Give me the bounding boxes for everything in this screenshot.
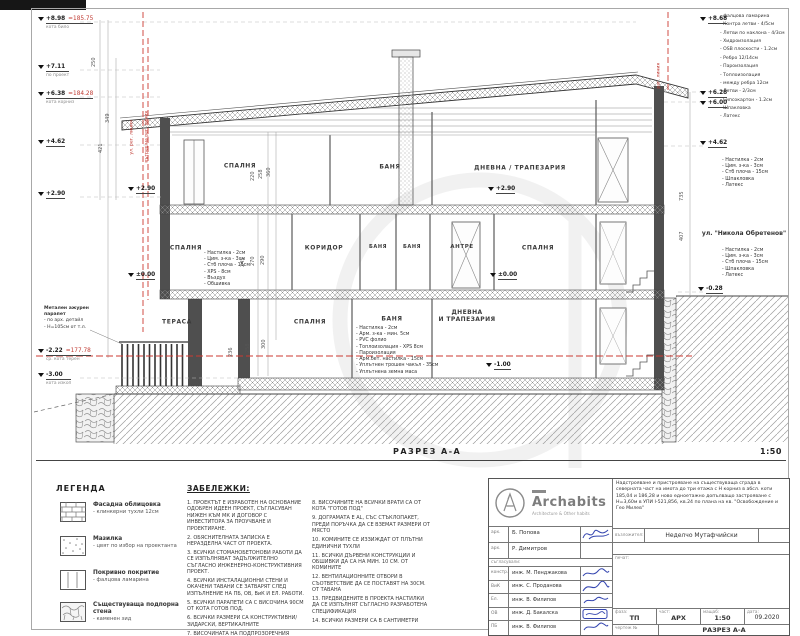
phase-value: ТП bbox=[613, 614, 656, 622]
legend-item: Съществуваща подпорна стена - каменен зи… bbox=[60, 602, 193, 623]
person-name: инж. Д. Бакалска bbox=[509, 608, 580, 617]
notes-column-1: 1. ПРОЕКТЪТ Е ИЗРАБОТЕН НА ОСНОВАНИЕ ОДО… bbox=[187, 500, 305, 636]
terrace-railing bbox=[90, 330, 188, 386]
person-name: инж. В. Филипов bbox=[509, 594, 580, 603]
person-name: инж. М. Пенджакова bbox=[509, 567, 580, 576]
room-label: СПАЛНЯ bbox=[522, 245, 554, 252]
role-label: ПБ bbox=[489, 621, 508, 629]
dim-label: 290 bbox=[261, 255, 266, 265]
signature-cell bbox=[581, 621, 613, 635]
elevation-marker: +2.90 bbox=[128, 186, 155, 194]
person-name: Р. Димитров bbox=[509, 543, 580, 552]
scale-value: 1:50 bbox=[701, 614, 744, 622]
signature-icon bbox=[581, 527, 611, 541]
room-label: КОРИДОР bbox=[305, 245, 343, 252]
person-name: Б. Попова bbox=[509, 527, 580, 536]
dim-label: 258 bbox=[259, 169, 264, 179]
role-label: арх. bbox=[489, 527, 508, 535]
elevation-marker: +6.28 bbox=[700, 90, 727, 98]
level-marker-icon bbox=[700, 91, 706, 95]
room-label: БАНЯ bbox=[381, 316, 402, 323]
project-description: Надстрояване и пристрояване на съществув… bbox=[613, 479, 789, 515]
part-value: АРХ bbox=[657, 614, 700, 622]
dim-label: 360 bbox=[267, 167, 272, 177]
section-title: РАЗРЕЗ А-А bbox=[393, 447, 461, 456]
dim-label: 300 bbox=[262, 339, 267, 349]
dim-label: 349 bbox=[106, 113, 111, 123]
client-name: Неделчо Мутафчийски bbox=[645, 529, 758, 539]
stairs bbox=[626, 271, 654, 376]
drawing-sheet: СПАЛНЯ БАНЯ ДНЕВНА / ТРАПЕЗАРИЯ СПАЛНЯ К… bbox=[0, 0, 800, 636]
dim-label: 270 bbox=[251, 256, 256, 266]
level-marker-icon bbox=[486, 363, 492, 367]
brand-tagline: Architecture & Other habits bbox=[532, 511, 606, 516]
dim-label: 250 bbox=[92, 57, 97, 67]
spec-list-ground: - Настилка - 2см- Арм. з-ка - мин. 5см- … bbox=[356, 326, 438, 376]
signature-icon bbox=[581, 567, 611, 579]
level-marker-icon bbox=[38, 17, 44, 21]
signature-cell bbox=[581, 543, 613, 559]
elevation-marker: +6.38=184.28 кота корниз bbox=[38, 91, 93, 105]
elevation-marker: +8.98=185.75 кота било bbox=[38, 16, 93, 30]
stone-wall-icon bbox=[60, 602, 86, 622]
legend-title: ЛЕГЕНДА bbox=[56, 484, 106, 493]
elevation-marker: +6.00 bbox=[700, 100, 727, 108]
elevation-marker: ±0.00 bbox=[490, 272, 517, 280]
level-marker-icon bbox=[700, 101, 706, 105]
elevation-marker: -0.28 bbox=[698, 286, 723, 294]
room-label: АНТРЕ bbox=[450, 244, 473, 250]
role-label: ВиК bbox=[489, 581, 508, 589]
dim-label: 220 bbox=[251, 171, 256, 181]
room-label: ТЕРАСА bbox=[162, 319, 192, 326]
level-marker-icon bbox=[488, 187, 494, 191]
approved-label: съгласували: bbox=[489, 559, 612, 564]
street-label: ул. "Никола Обретенов" bbox=[698, 230, 790, 237]
parapet-note: Метален ажуренпарапет- по арх. детайл- Н… bbox=[44, 306, 89, 331]
chimney bbox=[392, 50, 420, 205]
level-marker-icon bbox=[38, 373, 44, 377]
signature-cell bbox=[581, 581, 613, 595]
level-marker-icon bbox=[38, 349, 44, 353]
role-label: констр. bbox=[489, 567, 508, 575]
spec-list-roof: - фалцова ламарина- Контра летви - 4/5см… bbox=[720, 13, 785, 122]
signature-stamp-icon bbox=[581, 608, 611, 620]
room-label: БАНЯ bbox=[403, 244, 421, 250]
section-scale: 1:50 bbox=[760, 447, 782, 456]
role-label: Ел. bbox=[489, 594, 508, 602]
plaster-hatch-icon bbox=[60, 536, 86, 556]
dim-label: 407 bbox=[680, 231, 685, 241]
elevation-marker: -2.22=177.78 ср. кота терен bbox=[38, 348, 91, 362]
room-label: СПАЛНЯ bbox=[224, 163, 256, 170]
client-label: възложител: bbox=[613, 529, 644, 537]
dim-label: 735 bbox=[680, 191, 685, 201]
elevation-marker: +2.90 bbox=[488, 186, 515, 194]
elevation-marker: +7.11 по проект bbox=[38, 64, 69, 78]
level-marker-icon bbox=[700, 17, 706, 21]
signature-icon bbox=[581, 581, 611, 593]
notes-column-2: 8. ВИСОЧИНИТЕ НА ВСИЧКИ ВРАТИ СА ОТ КОТА… bbox=[312, 500, 430, 627]
brick-hatch-icon bbox=[60, 502, 86, 522]
elevation-marker: -1.00 bbox=[486, 362, 511, 370]
spacer-cell bbox=[613, 543, 789, 555]
signature-cell bbox=[581, 594, 613, 608]
spec-list-slab: - Настилка - 2см- Цим. з-ка - 3см- Стб п… bbox=[722, 158, 768, 189]
dim-label: 258 bbox=[246, 343, 251, 353]
dim-label: 421 bbox=[99, 143, 104, 153]
person-name: инж. С. Проданова bbox=[509, 581, 580, 590]
sheet-number-label: чертеж № bbox=[613, 625, 658, 630]
stamp-label: печат: bbox=[613, 555, 789, 560]
room-label: ДНЕВНА / ТРАПЕЗАРИЯ bbox=[474, 165, 566, 172]
level-marker-icon bbox=[490, 273, 496, 277]
elevation-marker: +4.62 bbox=[38, 139, 65, 147]
level-marker-icon bbox=[38, 92, 44, 96]
project-description-cell: Надстрояване и пристрояване на съществув… bbox=[613, 479, 789, 529]
title-block: Archabits Architecture & Other habits ар… bbox=[488, 478, 790, 636]
level-marker-icon bbox=[38, 65, 44, 69]
role-label: ОВ bbox=[489, 608, 508, 616]
room-label: ДНЕВНАИ ТРАПЕЗАРИЯ bbox=[438, 309, 495, 323]
signature-cell bbox=[581, 527, 613, 543]
elevation-marker: +8.68 bbox=[700, 16, 727, 24]
dim-label: 245 bbox=[241, 257, 246, 267]
regulation-lines bbox=[36, 12, 692, 356]
regulation-line-label: ул. рег. линия bbox=[130, 120, 135, 154]
brand-name: Archabits bbox=[532, 496, 606, 509]
level-marker-icon bbox=[128, 187, 134, 191]
regulation-line-label: вътрешна рег. линия bbox=[145, 111, 150, 163]
elevation-marker: +2.90 bbox=[38, 191, 65, 199]
person-name: инж. В. Филипов bbox=[509, 621, 580, 630]
sheet-name: РАЗРЕЗ А-А bbox=[659, 625, 789, 634]
level-marker-icon bbox=[128, 273, 134, 277]
room-label: СПАЛНЯ bbox=[170, 245, 202, 252]
elevation-marker: -3.00 кота изкоп bbox=[38, 372, 71, 386]
legend-item: Мазилка - цвят по избор на проектанта bbox=[60, 536, 177, 556]
signature-icon bbox=[581, 621, 611, 633]
legend-item: Фасадна облицовка - клинкерни тухли 12см bbox=[60, 502, 161, 522]
elevation-marker: +4.62 bbox=[700, 140, 727, 148]
logo-cell: Archabits Architecture & Other habits bbox=[489, 479, 613, 527]
level-marker-icon bbox=[698, 287, 704, 291]
logo-dash-icon bbox=[532, 490, 546, 494]
roof-sheet-icon bbox=[60, 570, 86, 590]
section-title-rule bbox=[36, 460, 786, 461]
archabits-logo-icon bbox=[493, 485, 527, 521]
date-value: 09.2020 bbox=[745, 614, 789, 621]
level-marker-icon bbox=[38, 140, 44, 144]
spec-list-slab: - Настилка - 2см- Цим. з-ка - 3см- Стб п… bbox=[722, 248, 768, 279]
room-label: БАНЯ bbox=[369, 244, 387, 250]
signature-icon bbox=[581, 594, 611, 606]
level-marker-icon bbox=[700, 141, 706, 145]
client-signature-cell bbox=[759, 529, 789, 543]
elevation-marker: ±0.00 bbox=[128, 272, 155, 280]
signature-cell bbox=[581, 608, 613, 622]
notes-title: ЗАБЕЛЕЖКИ: bbox=[187, 484, 250, 493]
regulation-line-label: рег. линия bbox=[657, 63, 662, 89]
role-label: арх. bbox=[489, 543, 508, 551]
legend-item: Покривно покритие - фалцова ламарина bbox=[60, 570, 159, 590]
level-marker-icon bbox=[38, 192, 44, 196]
room-label: СПАЛНЯ bbox=[294, 319, 326, 326]
signature-cell bbox=[581, 567, 613, 581]
room-label: БАНЯ bbox=[379, 164, 400, 171]
dim-label: 236 bbox=[229, 347, 234, 357]
stamp-cell: печат: bbox=[613, 555, 789, 609]
